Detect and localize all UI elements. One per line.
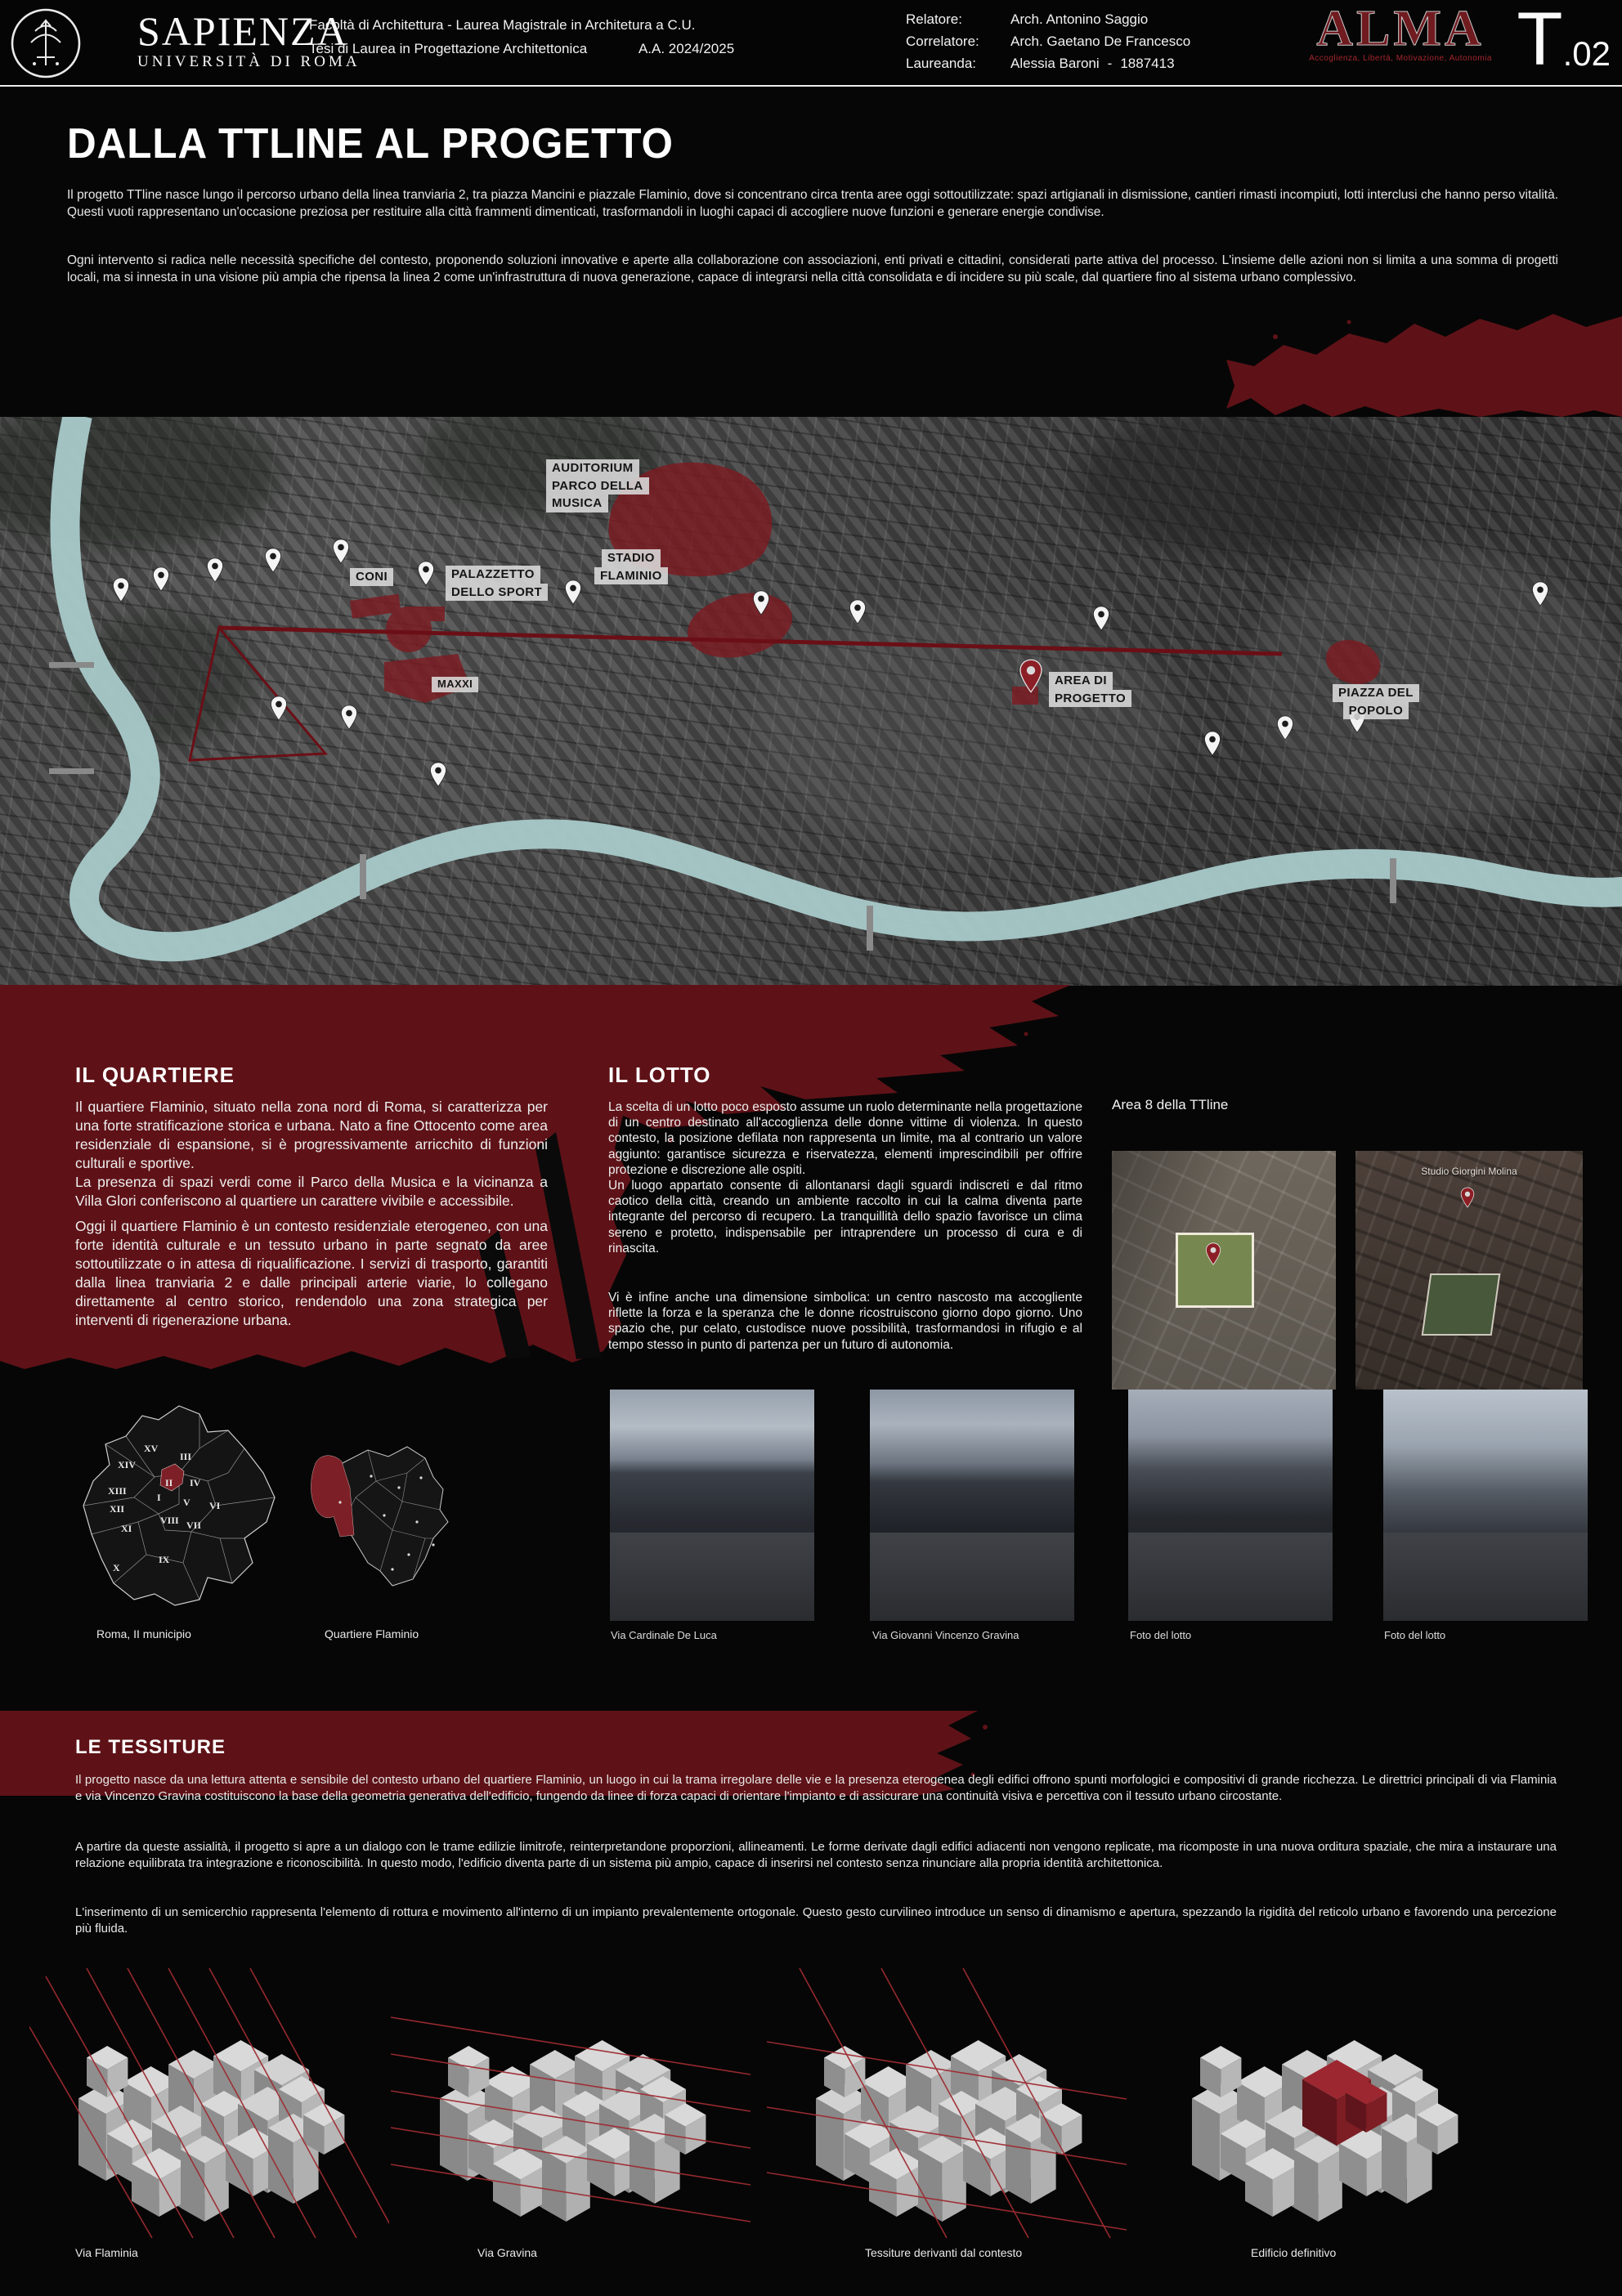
diagram-caption-3: Tessiture derivanti dal contesto: [865, 2246, 1022, 2259]
map-label-coni: CONI: [350, 568, 393, 586]
municipio-xi: XI: [121, 1523, 132, 1534]
intro-paragraph-1: Il progetto TTline nasce lungo il percor…: [67, 186, 1558, 221]
laureanda-name: Alessia Baroni: [1010, 52, 1100, 74]
municipio-xii: XII: [110, 1503, 124, 1515]
diagram-edificio-definitivo: [1143, 1968, 1503, 2238]
correlatore-label: Correlatore:: [906, 30, 1010, 52]
sheet-number: T .02: [1517, 2, 1611, 77]
municipio-iii: III: [180, 1451, 191, 1462]
thesis-credits: Relatore: Arch. Antonino Saggio Correlat…: [906, 8, 1190, 74]
map-label-palazzetto: PALAZZETTO DELLO SPORT: [446, 566, 548, 601]
diagram-tessiture-contesto: [767, 1968, 1127, 2238]
intro-paragraph-2: Ogni intervento si radica nelle necessit…: [67, 252, 1558, 286]
municipio-x: X: [113, 1562, 120, 1573]
area8-heading: Area 8 della TTline: [1112, 1097, 1228, 1113]
satellite-map: AUDITORIUM PARCO DELLA MUSICA CONI PALAZ…: [0, 417, 1622, 986]
municipio-vii: VII: [186, 1519, 201, 1531]
matricola-separator: -: [1108, 52, 1113, 74]
map-label-stadio: STADIO FLAMINIO: [594, 549, 668, 584]
project-lot-highlight-3d: [1422, 1273, 1501, 1336]
tessiture-heading: LE TESSITURE: [75, 1736, 226, 1759]
lotto-heading: IL LOTTO: [608, 1063, 710, 1088]
faculty-line1: Facoltà di Architettura - Laurea Magistr…: [309, 13, 734, 37]
tessiture-paragraph-2: A partire da queste assialità, il proget…: [75, 1839, 1557, 1872]
sapienza-emblem-icon: [10, 7, 82, 80]
tessiture-paragraph-1: Il progetto nasce da una lettura attenta…: [75, 1772, 1557, 1805]
sheet-num: .02: [1563, 31, 1611, 77]
aerial-map-image: [1112, 1151, 1336, 1390]
map-label-piazza-popolo: PIAZZA DEL POPOLO: [1333, 684, 1419, 719]
diagram-caption-4: Edificio definitivo: [1251, 2246, 1336, 2259]
photo-caption-1: Via Cardinale De Luca: [611, 1629, 717, 1641]
lotto-paragraph-1: La scelta di un lotto poco esposto assum…: [608, 1099, 1082, 1256]
photo-caption-4: Foto del lotto: [1384, 1629, 1445, 1641]
flaminio-map: [311, 1440, 451, 1589]
sheet-letter: T: [1517, 2, 1562, 77]
roma-municipi-map: XV III XIV IV II XIII I V VI XII VIII VI…: [77, 1399, 281, 1610]
diagram-caption-1: Via Flaminia: [75, 2246, 138, 2259]
diagram-via-flaminia: [29, 1968, 389, 2238]
page-title: DALLA TTLINE AL PROGETTO: [67, 119, 674, 168]
municipio-vi: VI: [209, 1500, 221, 1511]
quartiere-heading: IL QUARTIERE: [75, 1063, 235, 1088]
photo-via-cardinale: [610, 1390, 814, 1621]
municipio-xiv: XIV: [118, 1459, 136, 1470]
municipio-ii: II: [165, 1477, 173, 1488]
quartiere-paragraph-1: Il quartiere Flaminio, situato nella zon…: [75, 1098, 548, 1211]
photo-via-gravina: [870, 1390, 1074, 1621]
municipio-iv: IV: [190, 1477, 201, 1488]
aerial-3d-image: Studio Giorgini Molina: [1355, 1151, 1583, 1390]
torn-red-decoration-top: [1226, 312, 1622, 418]
academic-year: A.A. 2024/2025: [638, 41, 734, 56]
diagram-caption-2: Via Gravina: [477, 2246, 537, 2259]
relatore-name: Arch. Antonino Saggio: [1010, 8, 1148, 30]
lotto-paragraph-2: Vi è infine anche una dimensione simboli…: [608, 1290, 1082, 1353]
place-pin-icon: [1460, 1187, 1475, 1208]
photo-caption-2: Via Giovanni Vincenzo Gravina: [872, 1629, 1019, 1641]
aerial-place-label: Studio Giorgini Molina: [1355, 1166, 1583, 1177]
photo-caption-3: Foto del lotto: [1130, 1629, 1191, 1641]
correlatore-name: Arch. Gaetano De Francesco: [1010, 30, 1190, 52]
map-label-auditorium: AUDITORIUM PARCO DELLA MUSICA: [546, 459, 649, 512]
municipio-i: I: [157, 1492, 161, 1503]
municipio-xiii: XIII: [108, 1485, 127, 1497]
municipio-ix: IX: [159, 1554, 170, 1565]
quartiere-lotto-band: IL QUARTIERE Il quartiere Flaminio, situ…: [0, 985, 1622, 1704]
municipio-v: V: [183, 1497, 190, 1508]
faculty-line2: Tesi di Laurea in Progettazione Architet…: [309, 41, 587, 56]
thesis-poster: SAPIENZA UNIVERSITÀ DI ROMA Facoltà di A…: [0, 0, 1622, 2296]
header-bar: SAPIENZA UNIVERSITÀ DI ROMA Facoltà di A…: [0, 0, 1622, 87]
alma-logo: ALMA Accoglienza, Libertà, Motivazione, …: [1266, 3, 1535, 63]
photo-lotto-2: [1383, 1390, 1588, 1621]
tessiture-paragraph-3: L'inserimento di un semicerchio rapprese…: [75, 1904, 1557, 1937]
diagram-via-gravina: [391, 1968, 751, 2238]
flaminio-map-caption: Quartiere Flaminio: [325, 1627, 419, 1640]
faculty-block: Facoltà di Architettura - Laurea Magistr…: [309, 13, 734, 60]
alma-wordmark: ALMA: [1266, 3, 1535, 54]
quartiere-paragraph-2: Oggi il quartiere Flaminio è un contesto…: [75, 1217, 548, 1330]
photo-lotto-1: [1128, 1390, 1333, 1621]
map-label-maxxi: MAXXI: [432, 677, 478, 692]
alma-tagline: Accoglienza, Libertà, Motivazione, Auton…: [1266, 54, 1535, 63]
lot-pin-icon: [1205, 1242, 1221, 1265]
map-label-area-progetto: AREA DI PROGETTO: [1049, 672, 1131, 707]
relatore-label: Relatore:: [906, 8, 1010, 30]
laureanda-label: Laureanda:: [906, 52, 1010, 74]
matricola-number: 1887413: [1120, 52, 1174, 74]
municipio-xv: XV: [144, 1443, 159, 1454]
municipio-viii: VIII: [160, 1515, 179, 1526]
roma-map-caption: Roma, II municipio: [96, 1627, 191, 1640]
